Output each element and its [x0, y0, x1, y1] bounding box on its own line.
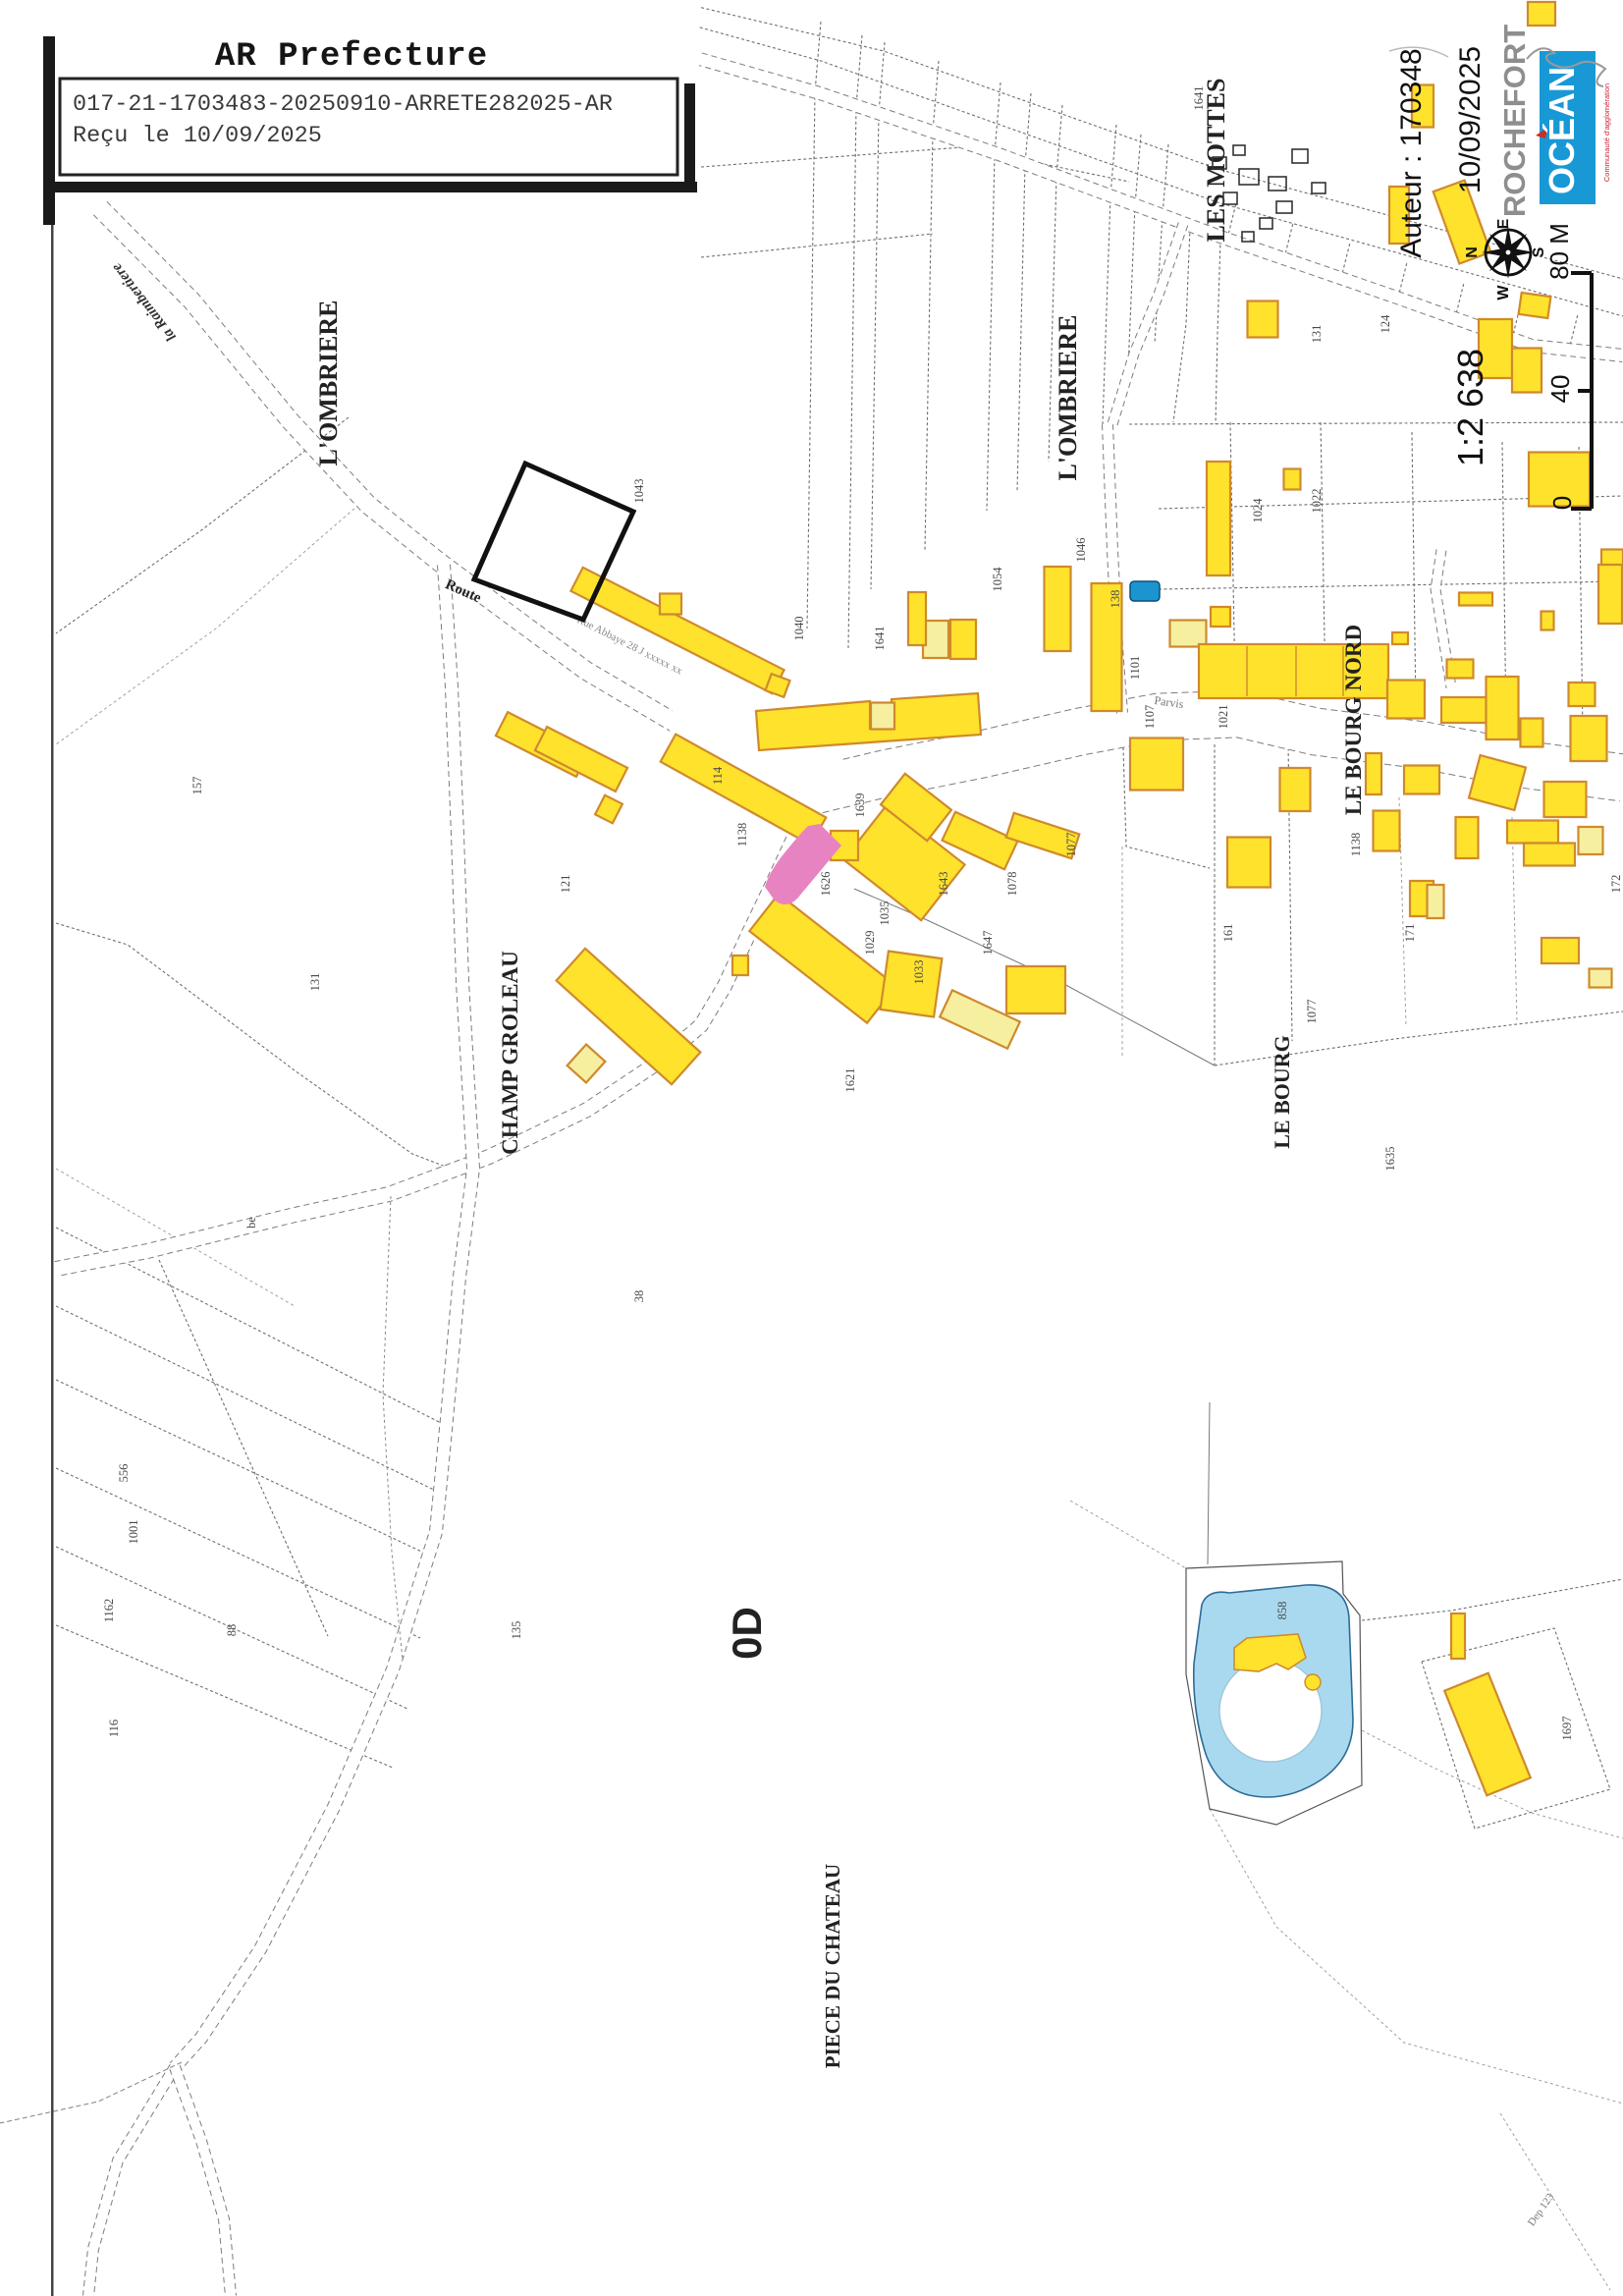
svg-text:PIECE DU CHATEAU: PIECE DU CHATEAU	[821, 1864, 844, 2068]
svg-text:OCÉAN: OCÉAN	[1542, 67, 1582, 194]
svg-text:1077: 1077	[1064, 833, 1078, 857]
svg-text:E: E	[1495, 218, 1512, 229]
svg-text:1138: 1138	[1349, 833, 1363, 857]
svg-text:80 M: 80 M	[1544, 223, 1574, 280]
svg-text:0D: 0D	[724, 1607, 770, 1660]
svg-text:858: 858	[1275, 1602, 1289, 1620]
svg-text:157: 157	[190, 777, 204, 795]
svg-text:LE BOURG: LE BOURG	[1270, 1035, 1294, 1149]
svg-text:AR Prefecture: AR Prefecture	[215, 38, 488, 76]
svg-text:131: 131	[308, 973, 322, 992]
svg-text:1107: 1107	[1143, 705, 1157, 730]
svg-text:1040: 1040	[792, 617, 806, 641]
svg-text:1641: 1641	[873, 627, 887, 651]
svg-text:1621: 1621	[843, 1068, 857, 1093]
svg-text:556: 556	[117, 1464, 131, 1483]
svg-text:1138: 1138	[735, 823, 749, 847]
svg-text:1029: 1029	[863, 931, 877, 956]
svg-text:1162: 1162	[102, 1599, 116, 1623]
svg-text:88: 88	[225, 1624, 239, 1637]
svg-text:1022: 1022	[1310, 489, 1324, 514]
svg-text:L'OMBRIERE: L'OMBRIERE	[1054, 314, 1082, 480]
svg-text:40: 40	[1545, 375, 1575, 404]
svg-text:1697: 1697	[1560, 1717, 1574, 1741]
svg-text:1077: 1077	[1305, 1000, 1319, 1024]
svg-text:1043: 1043	[632, 479, 646, 504]
svg-text:1024: 1024	[1251, 498, 1265, 523]
svg-text:1021: 1021	[1217, 705, 1230, 730]
svg-text:1078: 1078	[1005, 872, 1019, 897]
svg-text:10/09/2025: 10/09/2025	[1454, 46, 1487, 193]
svg-text:1641: 1641	[1192, 86, 1206, 111]
svg-text:116: 116	[107, 1720, 121, 1737]
svg-text:1635: 1635	[1383, 1147, 1397, 1172]
svg-text:114: 114	[711, 766, 725, 785]
svg-text:1001: 1001	[127, 1520, 140, 1545]
svg-text:Communauté d'agglomération: Communauté d'agglomération	[1602, 83, 1611, 182]
svg-text:131: 131	[1310, 325, 1324, 344]
svg-text:CHAMP GROLEAU: CHAMP GROLEAU	[498, 951, 522, 1155]
svg-text:1639: 1639	[853, 793, 867, 818]
svg-text:124: 124	[1379, 314, 1392, 334]
svg-text:1033: 1033	[912, 960, 926, 985]
svg-text:1035: 1035	[878, 902, 892, 926]
svg-text:LE BOURG NORD: LE BOURG NORD	[1341, 625, 1366, 815]
svg-text:be: be	[244, 1217, 258, 1229]
svg-text:1647: 1647	[981, 931, 995, 956]
svg-text:N: N	[1464, 246, 1481, 258]
svg-text:0: 0	[1547, 496, 1577, 510]
svg-text:ROCHEFORT: ROCHEFORT	[1497, 25, 1532, 217]
svg-text:161: 161	[1221, 924, 1235, 943]
svg-text:171: 171	[1403, 924, 1417, 943]
svg-text:1643: 1643	[937, 872, 950, 897]
svg-text:121: 121	[559, 875, 572, 894]
svg-text:1626: 1626	[819, 872, 833, 897]
svg-text:W: W	[1495, 285, 1512, 301]
svg-text:1:2 638: 1:2 638	[1450, 349, 1490, 466]
svg-text:38: 38	[632, 1290, 646, 1303]
svg-text:135: 135	[510, 1621, 523, 1640]
svg-text:017-21-1703483-20250910-ARRETE: 017-21-1703483-20250910-ARRETE282025-AR	[73, 91, 613, 118]
svg-text:138: 138	[1109, 590, 1122, 609]
svg-text:L'OMBRIERE: L'OMBRIERE	[314, 300, 343, 465]
svg-text:1101: 1101	[1128, 656, 1142, 681]
svg-text:172: 172	[1609, 875, 1623, 894]
svg-text:Reçu le 10/09/2025: Reçu le 10/09/2025	[73, 123, 322, 149]
svg-text:Auteur : 170348: Auteur : 170348	[1395, 48, 1428, 258]
svg-text:1046: 1046	[1074, 538, 1088, 563]
svg-text:1054: 1054	[991, 567, 1004, 592]
